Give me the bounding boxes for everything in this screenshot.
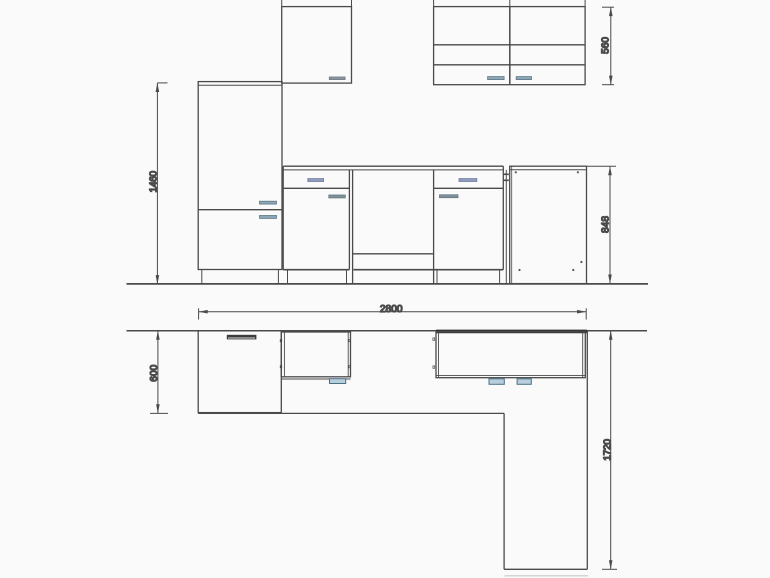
svg-text:600: 600 [149,364,160,381]
svg-text:1460: 1460 [148,170,159,192]
svg-text:848: 848 [600,216,611,233]
svg-text:2800: 2800 [380,304,403,315]
svg-text:1720: 1720 [602,439,613,461]
svg-text:560: 560 [601,37,612,54]
